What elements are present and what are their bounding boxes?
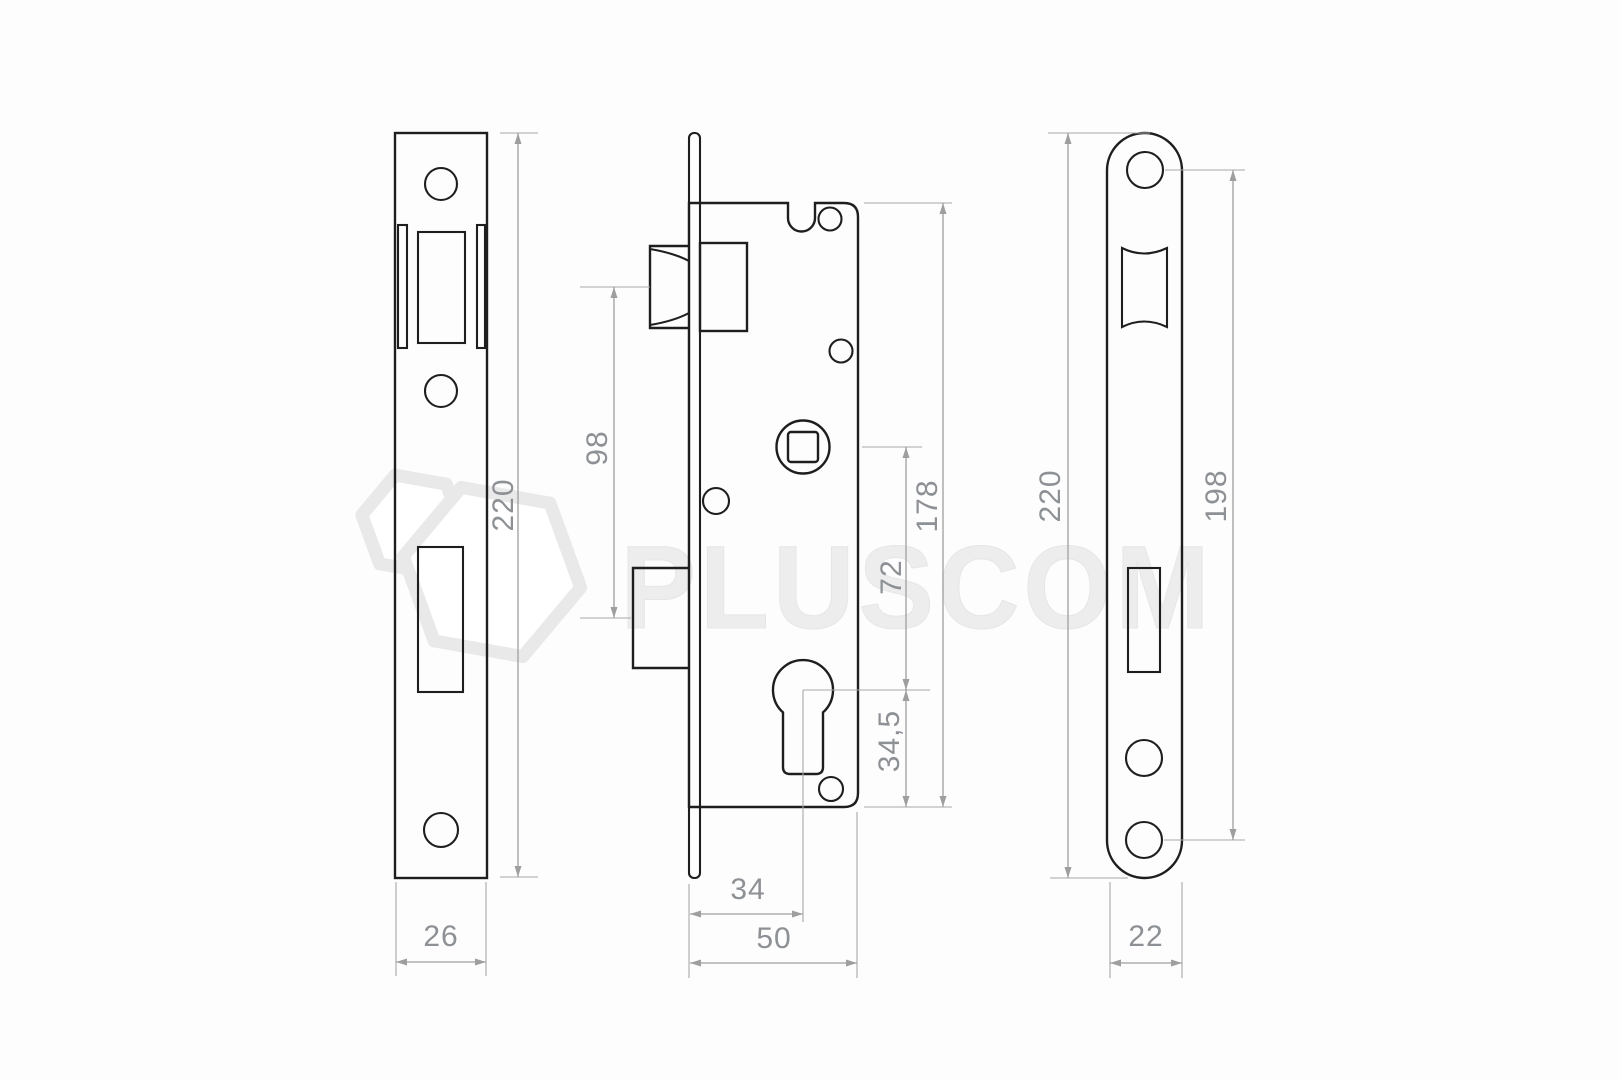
dim-label-strike-height: 220 (487, 478, 520, 531)
lock-case-outline (689, 203, 858, 807)
strike-screw-hole-middle (425, 375, 457, 407)
dim-label-backset: 34 (730, 873, 765, 906)
latch-bolt-body (700, 243, 747, 331)
dim-hole-spacing: 198 (1164, 170, 1245, 840)
dim-label-spindle-to-cylinder: 72 (875, 559, 908, 594)
strike-latch-opening (418, 232, 465, 343)
spindle-follower-circle (777, 421, 830, 474)
strike-side-tab-right (477, 225, 485, 348)
case-hole-bottom (819, 777, 843, 801)
case-hole-top (819, 208, 842, 231)
dim-label-faceplate-height: 220 (1034, 469, 1067, 522)
lock-technical-drawing: PLUSCOM 220 26 (0, 0, 1620, 1080)
dim-label-faceplate-width: 22 (1128, 920, 1163, 953)
dim-cylinder-to-bottom: 34,5 (873, 690, 906, 807)
strike-screw-hole-bottom (424, 813, 458, 847)
dim-strike-width: 26 (396, 882, 486, 976)
faceplate-screw-hole-bottom (1126, 822, 1162, 858)
brand-watermark: PLUSCOM (621, 522, 1214, 654)
faceplate-outline (1107, 133, 1182, 878)
dim-label-hole-spacing: 198 (1200, 469, 1233, 522)
spindle-square-hole (788, 432, 818, 462)
dim-faceplate-width: 22 (1110, 882, 1182, 978)
case-hole-left (703, 488, 729, 514)
faceplate-latch-cutout (1122, 248, 1167, 327)
faceplate-screw-hole-top (1127, 152, 1163, 188)
dim-faceplate-height: 220 (1034, 133, 1150, 878)
dim-label-case-depth: 50 (756, 922, 791, 955)
lock-faceplate-strip (689, 133, 700, 878)
strike-side-tab-left (398, 225, 407, 348)
dim-case-depth: 50 (690, 812, 857, 978)
faceplate-screw-hole-middle (1126, 740, 1162, 776)
dim-label-strike-width: 26 (423, 920, 458, 953)
case-hole-upper-right (830, 340, 853, 363)
technical-drawing-page: PLUSCOM 220 26 (0, 0, 1620, 1080)
latch-bolt-face-curve-top (650, 249, 689, 261)
strike-screw-hole-top (425, 168, 457, 200)
latch-bolt-face-curve-bottom (650, 313, 689, 325)
dim-label-latch-to-deadbolt: 98 (581, 430, 614, 465)
dim-label-case-height: 178 (911, 479, 944, 532)
dim-label-cylinder-to-bottom: 34,5 (873, 710, 906, 772)
